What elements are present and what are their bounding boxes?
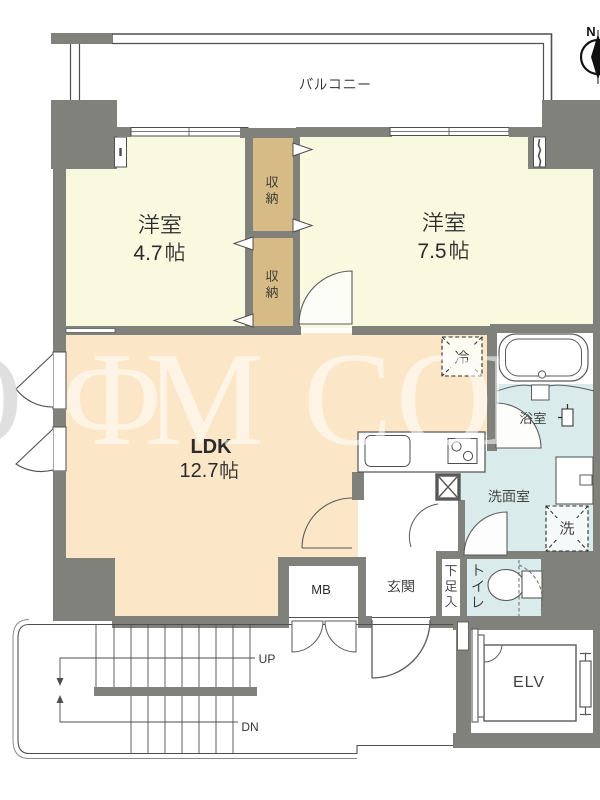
svg-text:O: O (0, 325, 23, 473)
svg-text:4.7: 4.7 (133, 242, 162, 265)
svg-text:UP: UP (259, 652, 276, 666)
svg-text:C: C (303, 325, 392, 473)
svg-text:M: M (145, 325, 264, 473)
svg-text:N: N (586, 24, 595, 39)
svg-text:MB: MB (311, 582, 331, 597)
svg-text:O: O (396, 325, 493, 473)
svg-text:7.5: 7.5 (417, 240, 446, 263)
svg-text:ELV: ELV (513, 674, 545, 691)
svg-text:DN: DN (241, 720, 258, 734)
